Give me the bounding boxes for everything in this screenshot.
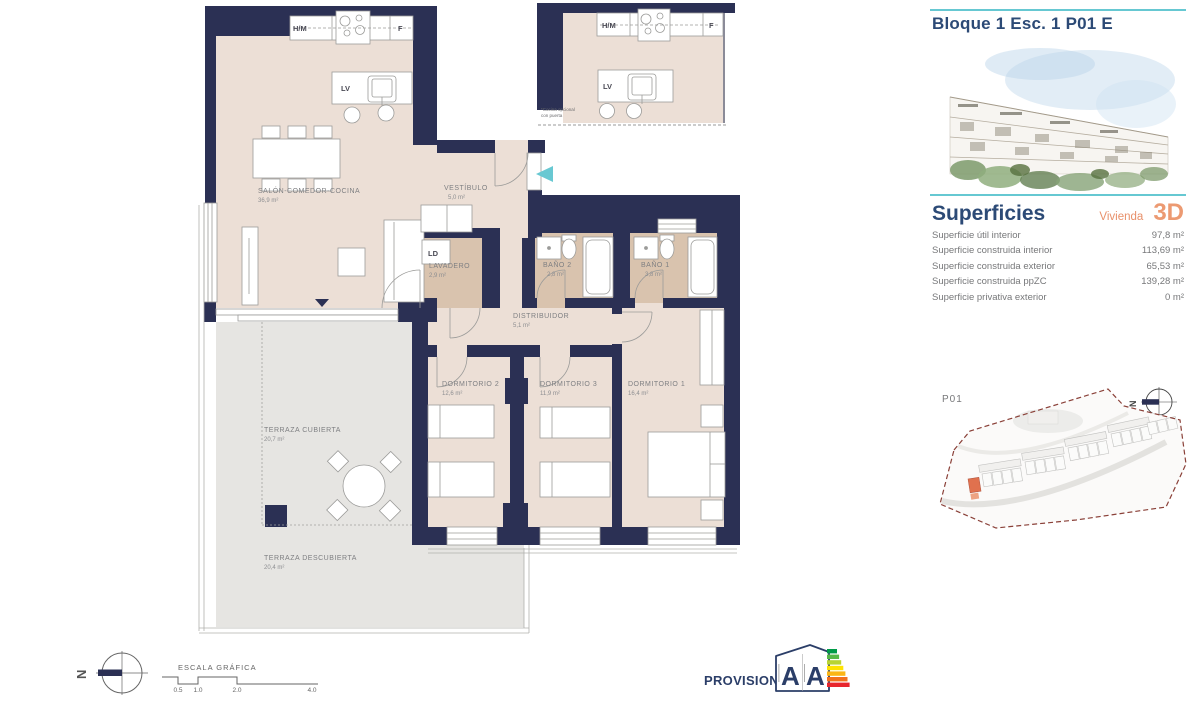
table-row: Superficie útil interior 97,8 m² bbox=[932, 228, 1184, 243]
room-label-dormitorio1: DORMITORIO 1 bbox=[628, 381, 685, 388]
divider-line-top bbox=[930, 9, 1186, 11]
room-area-lavadero: 2,9 m² bbox=[429, 273, 446, 279]
scale-tick: 1.0 bbox=[193, 687, 202, 694]
room-label-vestibulo: VESTÍBULO bbox=[444, 185, 488, 192]
north-compass: N bbox=[74, 651, 148, 695]
room-label-dormitorio3: DORMITORIO 3 bbox=[540, 381, 597, 388]
lv-label: LV bbox=[341, 84, 350, 93]
surface-label: Superficie construida ppZC bbox=[932, 274, 1047, 289]
room-label-terraza-cubierta: TERRAZA CUBIERTA bbox=[264, 427, 341, 434]
room-label-dormitorio2: DORMITORIO 2 bbox=[442, 381, 499, 388]
info-sidebar: Bloque 1 Esc. 1 P01 E bbox=[928, 0, 1190, 698]
scale-tick: 4.0 bbox=[307, 687, 316, 694]
table-row: Superficie privativa exterior 0 m² bbox=[932, 290, 1184, 305]
siteplan-north-letter: N bbox=[1128, 401, 1138, 408]
room-area-distribuidor: 5,1 m² bbox=[513, 323, 530, 329]
room-area-dormitorio3: 11,9 m² bbox=[540, 391, 560, 397]
room-area-dormitorio1: 16,4 m² bbox=[628, 391, 648, 397]
surface-label: Superficie útil interior bbox=[932, 228, 1021, 243]
surface-value: 97,8 m² bbox=[1152, 228, 1184, 243]
surface-table: Superficie útil interior 97,8 m² Superfi… bbox=[932, 228, 1184, 305]
north-letter: N bbox=[74, 670, 89, 679]
vivienda-label: Vivienda bbox=[1099, 211, 1143, 223]
energy-certificate-icon: A A bbox=[770, 640, 852, 696]
superficies-heading: Superficies bbox=[932, 202, 1099, 226]
room-area-dormitorio2: 12,6 m² bbox=[442, 391, 462, 397]
room-label-distribuidor: DISTRIBUIDOR bbox=[513, 313, 569, 320]
surface-label: Superficie privativa exterior bbox=[932, 290, 1047, 305]
vivienda-code: 3D bbox=[1153, 199, 1184, 227]
siteplan-level-label: P01 bbox=[942, 394, 963, 405]
scale-tick: 2.0 bbox=[232, 687, 241, 694]
inset-note-line2: con puerta bbox=[541, 113, 562, 118]
room-area-terraza-descubierta: 20,4 m² bbox=[264, 565, 284, 571]
room-label-terraza-descubierta: TERRAZA DESCUBIERTA bbox=[264, 555, 357, 562]
inset-note-line1: *Cocina opcional bbox=[541, 107, 575, 112]
inset-lv-label: LV bbox=[603, 82, 612, 91]
scale-bar: ESCALA GRÁFICA 0.5 1.0 2.0 4.0 bbox=[162, 663, 318, 694]
surface-value: 139,28 m² bbox=[1141, 274, 1184, 289]
divider-line-bottom bbox=[930, 194, 1186, 196]
scale-label: ESCALA GRÁFICA bbox=[178, 663, 257, 672]
table-row: Superficie construida exterior 65,53 m² bbox=[932, 259, 1184, 274]
surface-value: 65,53 m² bbox=[1147, 259, 1185, 274]
table-row: Superficie construida ppZC 139,28 m² bbox=[932, 274, 1184, 289]
room-label-bano1: BAÑO 1 bbox=[641, 262, 670, 269]
page-title: Bloque 1 Esc. 1 P01 E bbox=[932, 14, 1113, 34]
energy-letter-left: A bbox=[781, 661, 800, 691]
room-area-vestibulo: 5,0 m² bbox=[448, 195, 465, 201]
floor-plan: H/M F LV LD H/M F LV N ESCALA GRÁFICA 0.… bbox=[0, 0, 880, 698]
room-area-bano2: 2,8 m² bbox=[547, 272, 564, 278]
room-label-bano2: BAÑO 2 bbox=[543, 262, 572, 269]
hm-label: H/M bbox=[293, 24, 307, 33]
surface-value: 0 m² bbox=[1165, 290, 1184, 305]
building-rendering bbox=[940, 42, 1178, 194]
room-label-lavadero: LAVADERO bbox=[429, 263, 470, 270]
energy-bars bbox=[827, 649, 850, 687]
surface-label: Superficie construida interior bbox=[932, 243, 1052, 258]
room-area-bano1: 3,8 m² bbox=[645, 272, 662, 278]
scale-tick: 0.5 bbox=[173, 687, 182, 694]
floor-plan-drawing: H/M F LV LD H/M F LV N ESCALA GRÁFICA 0.… bbox=[0, 0, 880, 698]
energy-letter-right: A bbox=[806, 661, 825, 691]
ld-label: LD bbox=[428, 249, 439, 258]
inset-hm-label: H/M bbox=[602, 21, 616, 30]
surface-value: 113,69 m² bbox=[1142, 243, 1184, 258]
room-label-salon: SALÓN-COMEDOR-COCINA bbox=[258, 188, 360, 195]
site-plan: P01 N bbox=[928, 376, 1190, 546]
table-row: Superficie construida interior 113,69 m² bbox=[932, 243, 1184, 258]
f-label: F bbox=[398, 24, 403, 33]
surface-label: Superficie construida exterior bbox=[932, 259, 1055, 274]
inset-f-label: F bbox=[709, 21, 714, 30]
room-area-terraza-cubierta: 20,7 m² bbox=[264, 437, 284, 443]
room-area-salon: 36,9 m² bbox=[258, 198, 278, 204]
